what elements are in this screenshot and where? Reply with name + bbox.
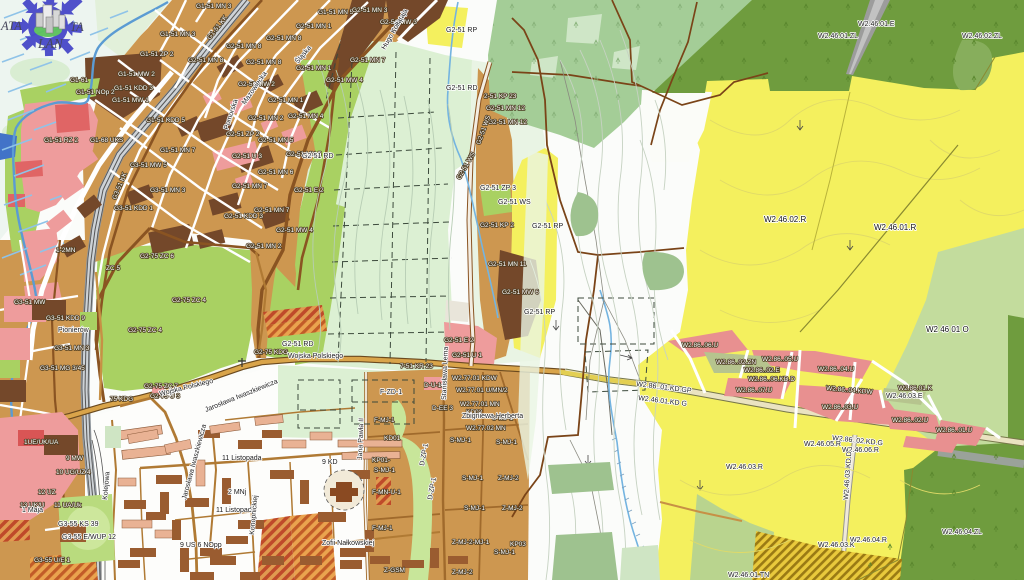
svg-text:G2-51 U 3: G2-51 U 3: [232, 153, 262, 160]
svg-text:G2-51 E 2: G2-51 E 2: [444, 337, 474, 344]
svg-text:75 KDG: 75 KDG: [110, 396, 133, 403]
svg-text:G2-51 RP: G2-51 RP: [532, 223, 563, 230]
svg-text:W2.46.04.R: W2.46.04.R: [850, 537, 887, 544]
svg-text:G3-51 MN 3: G3-51 MN 3: [54, 345, 90, 352]
svg-text:G3-51 MW 5: G3-51 MW 5: [130, 162, 167, 169]
svg-text:G1-61: G1-61: [70, 77, 88, 84]
svg-text:G2-51 WS: G2-51 WS: [498, 199, 531, 206]
svg-text:W2 46 01 O: W2 46 01 O: [926, 325, 969, 334]
svg-text:S-MJ-1: S-MJ-1: [450, 437, 471, 444]
svg-text:G2-51 KP 2: G2-51 KP 2: [480, 222, 514, 229]
svg-text:Z-MJ-2: Z-MJ-2: [498, 475, 519, 482]
svg-text:G2-51 MN 7: G2-51 MN 7: [350, 57, 386, 64]
svg-text:G3-51 MG 3/45: G3-51 MG 3/45: [40, 365, 85, 372]
svg-text:W2.86..02.E: W2.86..02.E: [744, 367, 780, 374]
svg-text:G2-51 RP: G2-51 RP: [446, 27, 477, 34]
svg-text:F-ZD-1: F-ZD-1: [380, 389, 402, 396]
svg-text:G3-55 KS 39: G3-55 KS 39: [58, 521, 99, 528]
svg-text:Z-GSM: Z-GSM: [384, 567, 405, 574]
svg-text:Zofii Nałkowskiej: Zofii Nałkowskiej: [322, 540, 375, 547]
svg-text:S-MJ-1: S-MJ-1: [494, 549, 515, 556]
svg-text:KD01: KD01: [384, 435, 401, 442]
svg-text:G2-75 KDG: G2-75 KDG: [254, 349, 288, 356]
svg-text:1-2MN: 1-2MN: [56, 247, 76, 254]
svg-text:11 Listopada: 11 Listopada: [216, 507, 256, 514]
svg-text:Pionierów: Pionierów: [58, 327, 90, 334]
svg-text:11 UA/Uk: 11 UA/Uk: [54, 502, 82, 509]
svg-text:ZC 5: ZC 5: [106, 265, 120, 272]
svg-text:G2-75 ZC 6: G2-75 ZC 6: [140, 253, 174, 260]
svg-text:G2-51 MN 5: G2-51 MN 5: [258, 137, 294, 144]
svg-text:G2-51 KDD 3: G2-51 KDD 3: [224, 213, 263, 220]
svg-text:G1-51 MW 1: G1-51 MW 1: [112, 97, 149, 104]
svg-text:W2.77.02 MN: W2.77.02 MN: [466, 425, 506, 432]
svg-text:G2-51 MN 1: G2-51 MN 1: [296, 65, 332, 72]
svg-text:F-MJ-1: F-MJ-1: [372, 525, 393, 532]
svg-text:12 UZ: 12 UZ: [38, 489, 56, 496]
svg-text:G2-51 MN 2: G2-51 MN 2: [248, 115, 284, 122]
svg-text:G3-51 KDD 9: G3-51 KDD 9: [46, 315, 85, 322]
svg-text:G2-51 MN 12: G2-51 MN 12: [488, 119, 527, 126]
svg-text:LAN: LAN: [37, 36, 64, 51]
svg-text:D-EE 3: D-EE 3: [432, 405, 453, 412]
svg-text:S-MJ-1: S-MJ-1: [462, 475, 483, 482]
svg-text:W2.77.01 MN: W2.77.01 MN: [460, 401, 500, 408]
svg-text:G2-51 MN 3: G2-51 MN 3: [352, 7, 388, 14]
svg-text:G1-51 MN 7: G1-51 MN 7: [160, 147, 196, 154]
svg-text:W2.86..04.U: W2.86..04.U: [818, 366, 854, 373]
svg-text:F-MJ-1: F-MJ-1: [374, 417, 395, 424]
svg-text:W2.86..05.U: W2.86..05.U: [762, 356, 798, 363]
svg-text:G3-51 MW: G3-51 MW: [14, 299, 46, 306]
svg-text:KP03: KP03: [510, 541, 526, 548]
svg-text:Wojska Polskiego: Wojska Polskiego: [288, 353, 343, 360]
svg-text:G2-51 MN 8: G2-51 MN 8: [246, 59, 282, 66]
svg-text:9 US 6 NOpp: 9 US 6 NOpp: [180, 542, 222, 549]
svg-text:1 Maja: 1 Maja: [22, 507, 43, 514]
svg-text:1UE/UK/UA: 1UE/UK/UA: [24, 439, 59, 446]
svg-text:G2-51 MN 2: G2-51 MN 2: [246, 243, 282, 250]
svg-text:G2-51 MN 12: G2-51 MN 12: [486, 105, 525, 112]
svg-text:W2.46.01.R: W2.46.01.R: [874, 223, 916, 232]
svg-text:W2.46.01.ZL: W2.46.01.ZL: [818, 33, 858, 40]
svg-text:G2-51 MN 7: G2-51 MN 7: [232, 183, 268, 190]
svg-text:G2-51 RD: G2-51 RD: [446, 85, 478, 92]
svg-text:Zbigniewa Herberta: Zbigniewa Herberta: [462, 413, 523, 420]
svg-text:F-MN-U-1: F-MN-U-1: [372, 489, 401, 496]
svg-text:G3-51 KDD 1: G3-51 KDD 1: [114, 205, 153, 212]
svg-text:W2.46.03.K: W2.46.03.K: [818, 542, 855, 549]
svg-text:G1-68 UKS: G1-68 UKS: [90, 137, 124, 144]
svg-text:TA: TA: [70, 20, 84, 34]
svg-text:G2-51 ZP 3: G2-51 ZP 3: [480, 185, 516, 192]
svg-text:W2.86..01.U: W2.86..01.U: [936, 427, 972, 434]
svg-text:S-MJ-1: S-MJ-1: [464, 505, 485, 512]
svg-text:G1-51 MN 5: G1-51 MN 5: [318, 9, 354, 16]
svg-text:11 Listopada: 11 Listopada: [222, 455, 262, 462]
svg-text:G2-51 MN 8: G2-51 MN 8: [266, 35, 302, 42]
svg-text:G1-51 KDD 5: G1-51 KDD 5: [146, 117, 185, 124]
svg-text:G2-75 ZC 4: G2-75 ZC 4: [172, 297, 206, 304]
svg-text:W2.86..02.ZN: W2.86..02.ZN: [716, 359, 756, 366]
svg-text:D-U-1: D-U-1: [424, 382, 442, 389]
svg-text:Z-MJ-2: Z-MJ-2: [502, 505, 523, 512]
svg-text:KP01-: KP01-: [372, 457, 390, 464]
svg-text:G2-51 U 1: G2-51 U 1: [452, 352, 482, 359]
svg-text:G2-51 MW 4: G2-51 MW 4: [326, 77, 363, 84]
svg-text:G1-51 RZ 2: G1-51 RZ 2: [44, 137, 78, 144]
svg-text:W2.77.01 KDW: W2.77.01 KDW: [452, 375, 498, 382]
svg-text:9 MW: 9 MW: [66, 455, 84, 462]
svg-text:G2-51 E 2: G2-51 E 2: [294, 187, 324, 194]
svg-text:W2.77.01 U/MN/2: W2.77.01 U/MN/2: [456, 387, 508, 394]
svg-text:W2.86..03.U: W2.86..03.U: [822, 404, 858, 411]
svg-text:G2-51 ZP 2: G2-51 ZP 2: [226, 131, 260, 138]
svg-text:G2-51 MN 6: G2-51 MN 6: [258, 169, 294, 176]
svg-text:W2.46.01.TN: W2.46.01.TN: [728, 572, 769, 579]
svg-text:S-MJ-1: S-MJ-1: [496, 439, 517, 446]
svg-text:G2-51 MW 4: G2-51 MW 4: [276, 227, 313, 234]
svg-text:W2.46.03.E: W2.46.03.E: [886, 393, 923, 400]
svg-text:G2-51 MN 1: G2-51 MN 1: [268, 97, 304, 104]
svg-text:G2-51 MN 11: G2-51 MN 11: [488, 261, 527, 268]
svg-text:W2.46.04.ZL: W2.46.04.ZL: [942, 529, 982, 536]
svg-text:G2-75 ZC 4: G2-75 ZC 4: [128, 327, 162, 334]
svg-text:G2-51 RD: G2-51 RD: [282, 341, 314, 348]
svg-text:G2-51 MW 6: G2-51 MW 6: [502, 289, 539, 296]
svg-text:W2.46.02.R: W2.46.02.R: [764, 215, 806, 224]
svg-text:G2-51 RD: G2-51 RD: [302, 153, 334, 160]
svg-text:W2.86.01.K: W2.86.01.K: [898, 385, 933, 392]
svg-text:G1-51 MW 2: G1-51 MW 2: [118, 71, 155, 78]
svg-text:2 MNj: 2 MNj: [228, 489, 247, 496]
svg-text:Jana Pawła II: Jana Pawła II: [357, 418, 365, 460]
svg-text:G2-51 RP: G2-51 RP: [524, 309, 555, 316]
svg-text:G1-51 ZP 2: G1-51 ZP 2: [140, 51, 174, 58]
svg-text:W2.86..02.U: W2.86..02.U: [892, 417, 928, 424]
svg-text:G2-51 MN 8: G2-51 MN 8: [226, 43, 262, 50]
svg-text:G1-51 MN 3: G1-51 MN 3: [196, 3, 232, 10]
svg-text:2-51 KP 23: 2-51 KP 23: [484, 93, 517, 100]
svg-text:W2.86..06.U: W2.86..06.U: [682, 342, 718, 349]
svg-text:7-51 KR 23: 7-51 KR 23: [400, 363, 433, 370]
svg-text:W2.46.05.R: W2.46.05.R: [804, 441, 841, 448]
svg-text:G2-51 MN 8: G2-51 MN 8: [188, 57, 224, 64]
svg-text:Z-MJ-2-MJ-1: Z-MJ-2-MJ-1: [452, 539, 490, 546]
svg-text:G3-51 MN 3: G3-51 MN 3: [150, 187, 186, 194]
svg-text:G1-51 KDD 3: G1-51 KDD 3: [114, 85, 153, 92]
svg-text:W2.46.02.ZL: W2.46.02.ZL: [962, 33, 1002, 40]
svg-text:G2-51 MN 1: G2-51 MN 1: [296, 23, 332, 30]
svg-text:G2-51 MN 4: G2-51 MN 4: [288, 113, 324, 120]
svg-text:G1-51 NOp 2: G1-51 NOp 2: [76, 89, 115, 96]
svg-text:ATA: ATA: [0, 19, 22, 33]
svg-text:Z-MJ-2: Z-MJ-2: [452, 569, 473, 576]
svg-text:W2.86..06.KD.D: W2.86..06.KD.D: [748, 376, 795, 383]
svg-text:G3-55 E/WUP 12: G3-55 E/WUP 12: [62, 534, 116, 541]
svg-text:9 KD: 9 KD: [322, 459, 338, 466]
svg-text:W2.46.01.E: W2.46.01.E: [858, 21, 895, 28]
svg-text:G1-51 MN 3: G1-51 MN 3: [160, 31, 196, 38]
svg-text:W2.46.03.R: W2.46.03.R: [726, 464, 763, 471]
svg-text:10 UG/UZ 4: 10 UG/UZ 4: [56, 469, 91, 476]
svg-text:G3-55 U/E 1: G3-55 U/E 1: [34, 557, 71, 564]
svg-text:S-MJ-1: S-MJ-1: [374, 467, 395, 474]
svg-text:W2.86..07.U: W2.86..07.U: [736, 387, 772, 394]
